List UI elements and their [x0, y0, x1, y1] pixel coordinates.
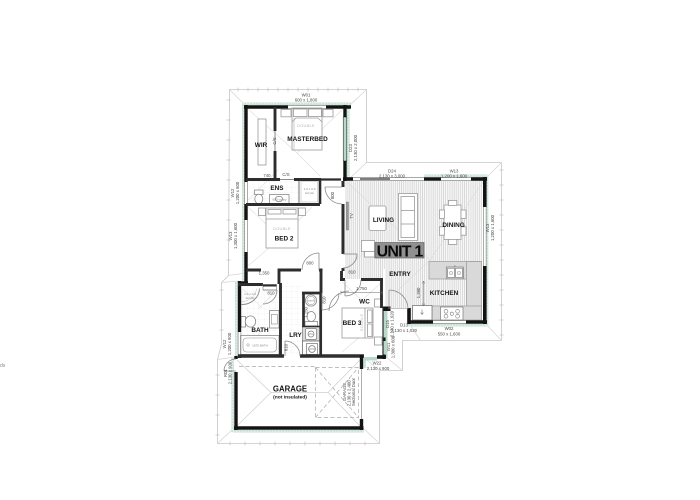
svg-text:810: 810	[267, 291, 275, 296]
svg-text:1,200 x 600: 1,200 x 600	[235, 181, 240, 204]
svg-text:810: 810	[348, 270, 356, 275]
svg-text:800: 800	[306, 261, 314, 266]
svg-text:WIR: WIR	[255, 142, 268, 149]
svg-text:600 x 1,800: 600 x 1,800	[295, 98, 318, 103]
svg-text:W/M: W/M	[309, 347, 316, 351]
svg-text:2,130 x 2,000: 2,130 x 2,000	[353, 134, 358, 161]
svg-text:ENTRY: ENTRY	[389, 271, 411, 278]
svg-text:1,300 x 1,600: 1,300 x 1,600	[233, 222, 238, 249]
svg-text:1,350: 1,350	[259, 271, 270, 276]
svg-text:DOUBLE: DOUBLE	[297, 123, 315, 128]
svg-text:Acrylic: Acrylic	[245, 296, 255, 300]
svg-text:2,130 x 900: 2,130 x 900	[228, 361, 233, 384]
svg-text:DOUBLE: DOUBLE	[273, 226, 291, 231]
svg-text:1,200 x 1,600: 1,200 x 1,600	[441, 174, 468, 179]
svg-text:2,130 x 3,000: 2,130 x 3,000	[379, 174, 406, 179]
svg-text:1,750: 1,750	[356, 286, 367, 291]
svg-text:LRY: LRY	[289, 332, 302, 339]
svg-text:wash: wash	[307, 299, 315, 303]
svg-text:1,380: 1,380	[416, 287, 421, 298]
svg-text:1,200 x 1,600: 1,200 x 1,600	[490, 214, 495, 241]
svg-text:Sectional Door: Sectional Door	[351, 377, 356, 406]
svg-text:(not insulated): (not insulated)	[273, 395, 307, 401]
svg-text:2,130 x 1,020: 2,130 x 1,020	[391, 328, 418, 333]
svg-text:1,150: 1,150	[304, 307, 309, 318]
svg-text:BED 2: BED 2	[275, 236, 294, 243]
svg-text:D13: D13	[400, 323, 408, 328]
svg-text:600 vanity: 600 vanity	[272, 198, 287, 202]
svg-text:KITCHEN: KITCHEN	[430, 290, 459, 297]
svg-text:550 x 1,600: 550 x 1,600	[438, 332, 461, 337]
svg-text:2,130 x 1,620: 2,130 x 1,620	[390, 310, 395, 337]
svg-text:Acrylic: Acrylic	[305, 191, 315, 195]
svg-text:ds: ds	[0, 363, 6, 369]
svg-text:1675 BATH: 1675 BATH	[252, 344, 268, 348]
svg-text:TV: TV	[349, 213, 354, 219]
svg-text:45L: 45L	[308, 332, 313, 336]
svg-text:W22: W22	[373, 361, 382, 366]
svg-text:LIVING: LIVING	[373, 217, 394, 224]
svg-text:740: 740	[263, 173, 271, 178]
svg-text:GARAGE: GARAGE	[273, 385, 307, 394]
svg-text:W02: W02	[445, 326, 454, 331]
svg-text:2,130 x 900: 2,130 x 900	[367, 366, 390, 371]
svg-text:810: 810	[322, 296, 327, 304]
svg-text:C/S: C/S	[282, 172, 289, 177]
svg-text:C/S: C/S	[272, 137, 277, 144]
svg-text:MASTERBED: MASTERBED	[287, 136, 328, 143]
svg-text:DOUBLE: DOUBLE	[359, 314, 364, 332]
svg-text:UNIT 1: UNIT 1	[377, 244, 424, 261]
svg-text:WC: WC	[359, 299, 370, 306]
svg-text:800: 800	[330, 191, 335, 199]
svg-text:1,200 x 900: 1,200 x 900	[227, 332, 232, 355]
svg-text:810: 810	[284, 343, 289, 351]
svg-text:ENS: ENS	[270, 185, 284, 192]
svg-text:DINING: DINING	[442, 222, 464, 229]
svg-text:1,300 x 600: 1,300 x 600	[391, 335, 396, 358]
svg-text:BATH: BATH	[251, 327, 269, 334]
